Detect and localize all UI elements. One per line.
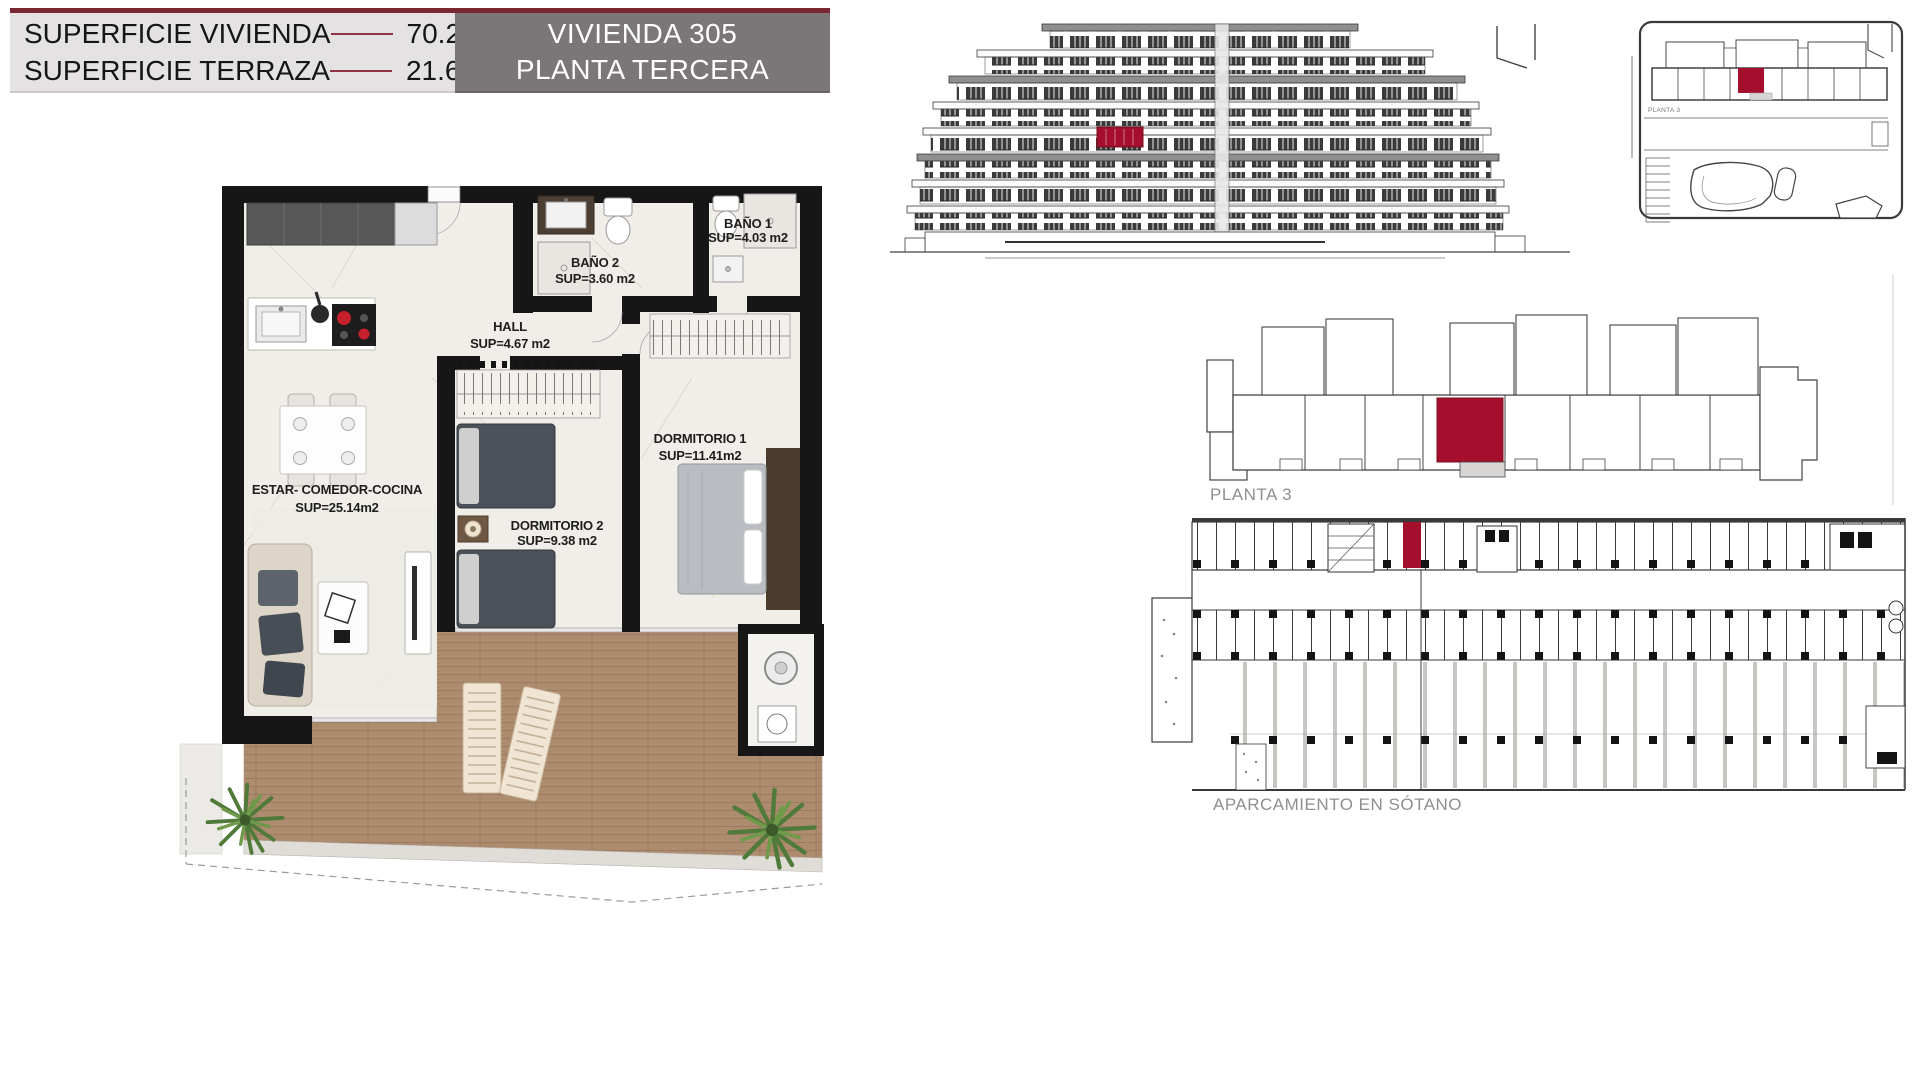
overview-floor-label: PLANTA 3: [1210, 485, 1292, 504]
surface-row-vivienda: SUPERFICIE VIVIENDA 70.20 m2: [24, 17, 445, 50]
wardrobe-dorm1: [650, 314, 790, 358]
room-area-hall: SUP=4.67 m2: [470, 336, 550, 351]
apartment-floor-plan: ESTAR- COMEDOR-COCINA SUP=25.14m2 HALL S…: [172, 178, 832, 933]
surface-terraza-label: SUPERFICIE TERRAZA: [24, 55, 330, 87]
stair-core: [1215, 24, 1229, 232]
building-elevation: [885, 0, 1575, 265]
highlighted-parking-space: [1403, 522, 1421, 568]
room-label-hall: HALL: [493, 319, 527, 334]
room-label-dorm1: DORMITORIO 1: [654, 431, 747, 446]
surface-vivienda-label: SUPERFICIE VIVIENDA: [24, 18, 331, 50]
site-plan: PLANTA 3: [1630, 8, 1915, 228]
room-area-bath2: SUP=3.60 m2: [555, 271, 635, 286]
parking-structure: [1152, 518, 1905, 790]
parking-label: APARCAMIENTO EN SÓTANO: [1213, 795, 1462, 814]
tv-board: [405, 552, 431, 654]
section-mark: [1497, 24, 1535, 68]
highlighted-unit-elevation: [1097, 127, 1143, 147]
room-label-bath1: BAÑO 1: [724, 216, 772, 231]
living-glass-door: [312, 718, 437, 722]
parking-plan: APARCAMIENTO EN SÓTANO: [1140, 510, 1918, 820]
site-floor-label: PLANTA 3: [1648, 107, 1680, 114]
sun-lounger: [463, 683, 501, 793]
elevation-floors: [907, 24, 1509, 230]
living-room: [248, 508, 437, 708]
leader-line: [330, 70, 392, 72]
dining-set: [280, 394, 366, 486]
plan-sheet: SUPERFICIE VIVIENDA 70.20 m2 SUPERFICIE …: [0, 0, 1918, 1080]
room-area-living: SUP=25.14m2: [295, 500, 378, 515]
unit-name: VIVIENDA 305: [548, 17, 738, 51]
room-label-bath2: BAÑO 2: [571, 255, 619, 270]
room-label-dorm2: DORMITORIO 2: [511, 518, 604, 533]
room-label-living: ESTAR- COMEDOR-COCINA: [252, 482, 423, 497]
highlighted-unit-site: [1738, 68, 1764, 93]
leader-line: [331, 33, 393, 35]
room-area-dorm1: SUP=11.41m2: [659, 448, 742, 463]
surface-row-terraza: SUPERFICIE TERRAZA 21.65 m2: [24, 54, 445, 87]
site-building: [1652, 40, 1887, 100]
highlighted-terrace-overview: [1460, 462, 1505, 477]
floor-overview-plan: PLANTA 3: [1140, 255, 1918, 505]
room-area-bath1: SUP=4.03 m2: [708, 230, 788, 245]
pan: [311, 305, 329, 323]
dorm1-bed: [678, 448, 800, 610]
unit-floor: PLANTA TERCERA: [516, 53, 769, 87]
title-block: SUPERFICIE VIVIENDA 70.20 m2 SUPERFICIE …: [10, 8, 830, 93]
overview-outline: [1207, 315, 1817, 480]
cooktop: [332, 304, 376, 346]
highlighted-unit-overview: [1437, 398, 1503, 462]
unit-box: VIVIENDA 305 PLANTA TERCERA: [455, 13, 830, 93]
room-area-dorm2: SUP=9.38 m2: [517, 533, 597, 548]
faucet: [279, 307, 284, 312]
surface-table: SUPERFICIE VIVIENDA 70.20 m2 SUPERFICIE …: [10, 13, 455, 93]
